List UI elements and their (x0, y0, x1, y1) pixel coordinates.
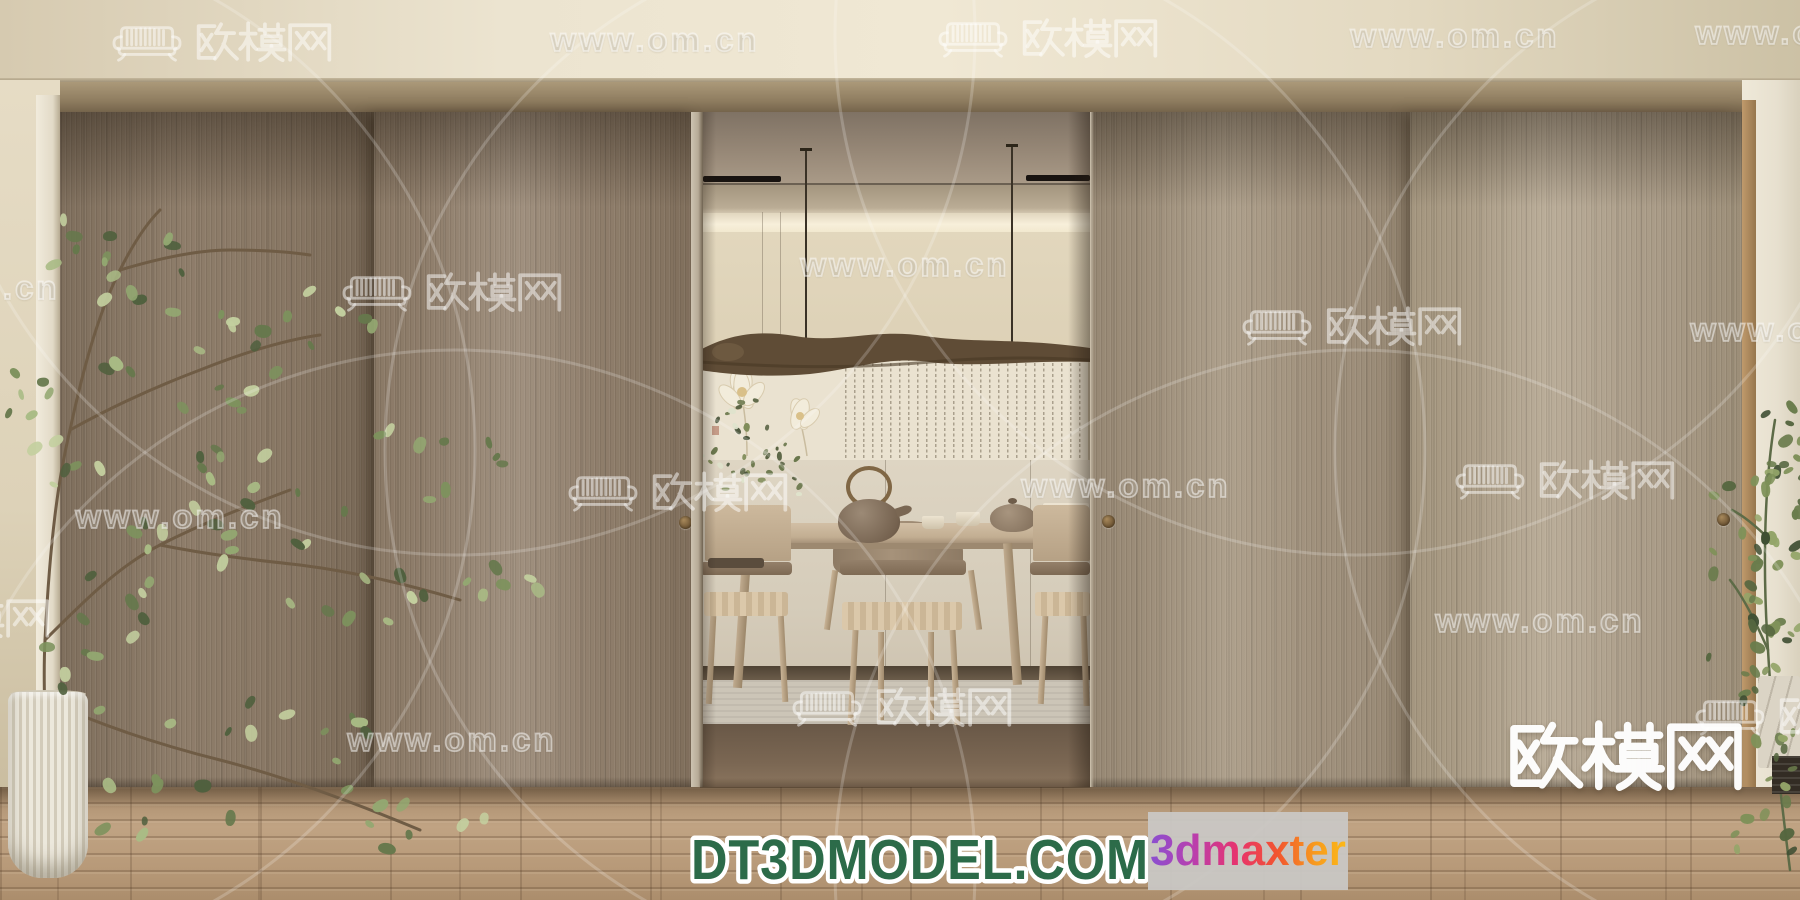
threshold-shadow (700, 778, 1090, 788)
leaf (795, 482, 803, 491)
pendant-mount (800, 148, 812, 151)
door-edge-highlight (1090, 112, 1094, 787)
leaf (777, 452, 782, 461)
sliding-door-panel-3 (1090, 112, 1410, 787)
door-top-shadow (374, 112, 700, 207)
leaf (775, 446, 778, 450)
door-top-shadow (1410, 112, 1742, 207)
tea-cup (956, 512, 980, 526)
dt3dmodel-watermark: DT3DMODEL.COM (610, 815, 1230, 900)
leaf (731, 471, 736, 474)
sliding-door-panel-1 (60, 112, 374, 787)
tea-cup (922, 516, 944, 529)
plant-vase (8, 692, 88, 878)
leaf (726, 462, 731, 467)
opening-shadow-right (1068, 112, 1090, 790)
leaf (742, 454, 747, 461)
leaf (717, 461, 725, 469)
leaf (791, 476, 796, 480)
chair-leg (878, 632, 884, 720)
dining-chair-left-seat (704, 592, 788, 616)
door-bottom-shadow (1090, 777, 1410, 787)
door-sheen (1138, 112, 1314, 787)
door-edge (691, 112, 703, 787)
pendant-mount (1006, 144, 1018, 147)
teapot (838, 499, 900, 543)
ceiling (0, 0, 1800, 82)
dining-room-opening (700, 112, 1090, 790)
leaf (778, 463, 786, 472)
driftwood-branch-light (700, 322, 1090, 412)
door-handle (1717, 513, 1730, 526)
rug (700, 680, 1090, 724)
door-bottom-shadow (374, 777, 700, 787)
sliding-door-panel-2 (374, 112, 700, 787)
interior-render-scene: www.om.cnwww.om.cnwww.om.cnwww.om.cnwww.… (0, 0, 1800, 900)
oumo-corner-logo (1506, 710, 1746, 802)
door-sheen (423, 112, 602, 787)
door-bottom-shadow (60, 777, 374, 787)
door-top-shadow (1090, 112, 1410, 207)
left-door-frame (36, 95, 60, 790)
door-handle (1102, 515, 1115, 528)
leaf (722, 487, 730, 491)
door-sheen (1460, 112, 1643, 787)
bonsai-plant (700, 442, 820, 572)
leaf (765, 469, 773, 476)
door-top-shadow (60, 112, 374, 207)
leaf (750, 460, 755, 468)
leaf (758, 478, 766, 483)
stone-planter (1758, 676, 1800, 768)
leaf (796, 492, 802, 496)
3dmaxter-logo: 3dmaxter (1148, 812, 1348, 890)
leaf (740, 477, 744, 483)
right-door-frame (1742, 100, 1756, 792)
small-teapot (990, 504, 1036, 532)
3dmaxter-text: 3dmaxter (1150, 826, 1346, 876)
baseboard (700, 666, 1090, 680)
leaf (792, 455, 800, 463)
dining-chair-center-backrail (840, 560, 966, 575)
planter-base (1772, 756, 1800, 794)
dining-chair-center-seat (842, 602, 962, 630)
door-track-fascia (28, 82, 1756, 113)
bonsai-tray (708, 558, 764, 568)
leaf (782, 441, 787, 446)
dt3dmodel-text: DT3DMODEL.COM (691, 828, 1149, 892)
wood-grain (60, 112, 374, 787)
sliding-door-panel-4 (1410, 112, 1742, 787)
chair-leg (928, 632, 934, 720)
